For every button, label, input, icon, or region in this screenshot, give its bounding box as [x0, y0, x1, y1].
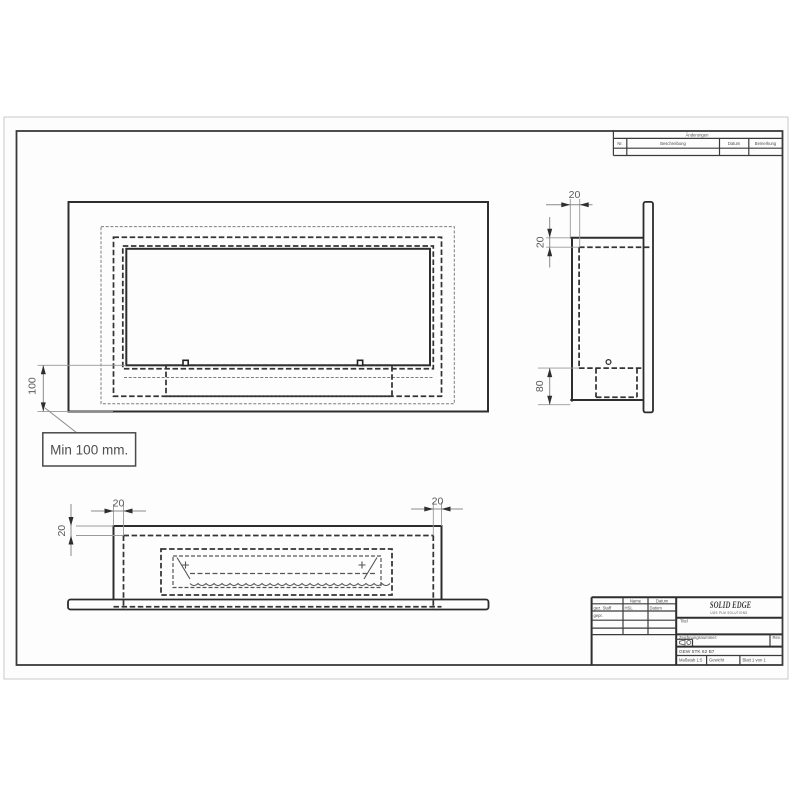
svg-text:100: 100: [26, 377, 38, 395]
svg-text:UGS PLM SOLUTIONS: UGS PLM SOLUTIONS: [710, 611, 747, 615]
svg-text:20: 20: [569, 189, 581, 201]
svg-text:20: 20: [534, 236, 546, 248]
svg-text:80: 80: [534, 380, 546, 392]
svg-text:Datum: Datum: [728, 141, 741, 146]
svg-text:GEW 5TK 62 B7: GEW 5TK 62 B7: [679, 649, 715, 655]
svg-text:SOLID EDGE: SOLID EDGE: [710, 600, 752, 610]
svg-text:Bemerkung: Bemerkung: [755, 141, 777, 146]
svg-text:Beschreibung: Beschreibung: [660, 141, 686, 146]
svg-text:Name: Name: [630, 598, 642, 603]
svg-text:Änderungen: Änderungen: [686, 132, 709, 137]
svg-text:Titel: Titel: [680, 619, 688, 624]
svg-text:20: 20: [56, 525, 68, 537]
svg-text:20: 20: [113, 498, 125, 510]
svg-text:Maßstab 1:5: Maßstab 1:5: [679, 658, 703, 663]
svg-text:gepr.: gepr.: [594, 613, 603, 618]
svg-text:Nr.: Nr.: [617, 141, 622, 146]
svg-text:Blatt 1 von 1: Blatt 1 von 1: [743, 658, 767, 663]
svg-text:Min 100 mm.: Min 100 mm.: [50, 443, 128, 458]
svg-text:Gewicht: Gewicht: [709, 658, 725, 663]
svg-text:20: 20: [432, 496, 444, 508]
svg-text:gez. Staff: gez. Staff: [594, 605, 612, 610]
svg-text:Datum: Datum: [656, 598, 669, 603]
svg-text:HSL: HSL: [625, 605, 634, 610]
svg-text:Rev.: Rev.: [773, 635, 781, 640]
svg-text:Datum: Datum: [650, 605, 663, 610]
